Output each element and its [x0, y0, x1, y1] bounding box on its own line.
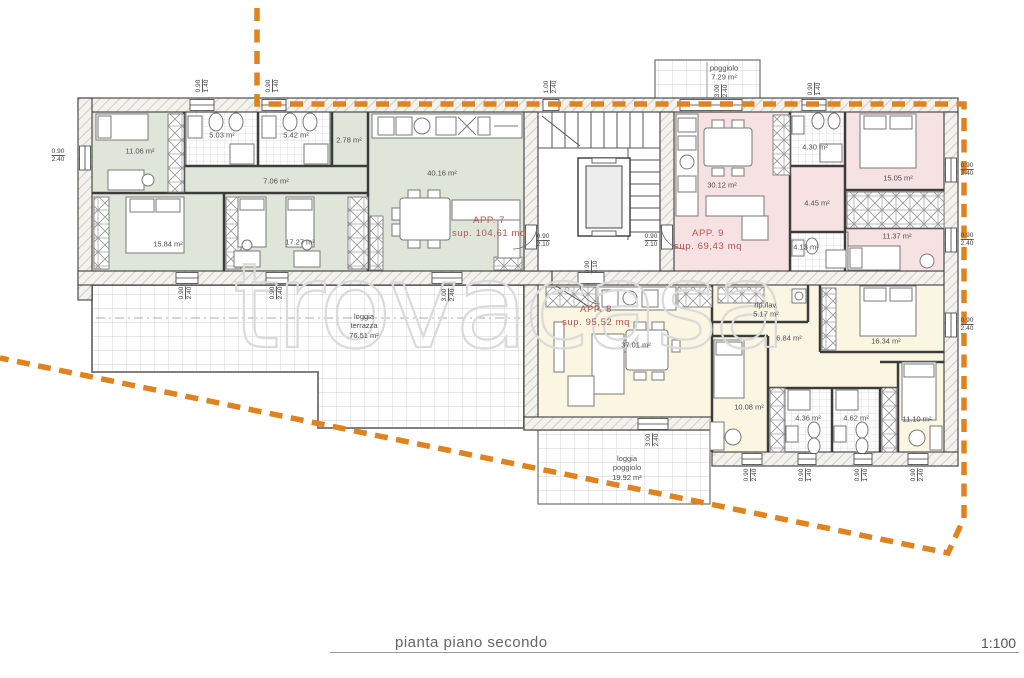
floor-plan-canvas: trovacasa 11.06 m² 5.03 m² 5.42 m² 2.78 … — [0, 0, 1024, 678]
dining-table — [400, 198, 450, 240]
room-label-bedroom: 15.05 m² — [883, 173, 913, 182]
dim-label: 0.901.40 — [807, 83, 823, 96]
apartment-area: sup. 69,43 mq — [674, 241, 742, 254]
room-label-corridor: 6.84 m² — [776, 333, 801, 342]
dim-label: 1.002.40 — [543, 81, 559, 94]
dim-label: 0.902.40 — [52, 148, 65, 164]
dim-label: 0.901.40 — [195, 80, 211, 93]
apartment-name: APP. 7 — [452, 215, 526, 228]
room-label-bathroom: 4.36 m² — [795, 413, 820, 422]
dim-label: 0.902.40 — [961, 232, 974, 248]
dim-label: 0.902.40 — [269, 287, 285, 300]
apartment-label-app7: APP. 7 sup. 104,61 mq — [452, 215, 526, 241]
room-label-bedroom: 11.06 m² — [125, 146, 154, 155]
dim-label: 3.002.40 — [714, 85, 730, 98]
room-label-living: 40.16 m² — [427, 168, 457, 177]
room-label-living: 37.01 m² — [621, 340, 651, 349]
room-label-laundry: rip./lav. 5.17 m² — [753, 301, 778, 320]
room-label-bathroom: 5.42 m² — [283, 130, 308, 139]
room-label-bathroom: 4.13 m² — [793, 242, 818, 251]
apartment-name: APP. 8 — [562, 304, 630, 317]
room-label-bathroom: 4.30 m² — [802, 142, 827, 151]
dim-label: 0.902.40 — [743, 469, 759, 482]
loggia-terrazza — [92, 285, 524, 428]
room-label-bedroom: 10.08 m² — [734, 402, 764, 411]
dim-label: 0.902.40 — [178, 287, 194, 300]
dim-label: 0.901.40 — [798, 469, 814, 482]
apartment-area: sup. 95,52 mq — [562, 317, 630, 330]
dim-label: 3.002.40 — [441, 289, 457, 302]
dim-label: 0.901.40 — [265, 80, 281, 93]
apartment-area: sup. 104,61 mq — [452, 228, 526, 241]
sofa — [706, 196, 764, 216]
dim-label: 0.902.10 — [645, 233, 658, 249]
room-label-bedroom: 16.34 m² — [871, 336, 901, 345]
dim-label: 0.902.40 — [961, 317, 974, 333]
dim-label: 0.902.40 — [961, 162, 974, 178]
room-label-bedroom: 15.84 m² — [153, 239, 183, 248]
room-label-corridor: 7.06 m² — [263, 176, 288, 185]
dim-label: 0.902.10 — [537, 233, 550, 249]
drawing-title: pianta piano secondo — [395, 634, 548, 651]
dining-table — [704, 128, 752, 166]
dim-label: 0.902.40 — [910, 469, 926, 482]
room-label-terrace: loggia terrazza 76.51 m² — [349, 312, 379, 340]
dim-label: 0.901.40 — [854, 469, 870, 482]
room-label-bedroom: 17.27 m² — [285, 237, 315, 246]
room-label-corridor: 4.45 m² — [804, 198, 829, 207]
apartment-name: APP. 9 — [674, 228, 742, 241]
title-rule — [330, 652, 1019, 653]
dining-table — [626, 330, 668, 370]
apartment-label-app8: APP. 8 sup. 95,52 mq — [562, 304, 630, 330]
room-label-bedroom: 11.37 m² — [882, 231, 911, 240]
apartment-label-app9: APP. 9 sup. 69,43 mq — [674, 228, 742, 254]
room-label-bathroom: 4.62 m² — [843, 413, 868, 422]
drawing-scale: 1:100 — [981, 635, 1016, 651]
room-label-loggia: loggia poggiolo 19.92 m² — [612, 454, 642, 482]
room-label-closet: 2.78 m² — [336, 135, 361, 144]
sofa — [592, 334, 624, 394]
room-label-balcony: poggiolo 7.29 m² — [710, 64, 738, 83]
room-label-bedroom: 11.10 m² — [902, 414, 931, 423]
room-label-living: 30.12 m² — [707, 180, 737, 189]
desk — [108, 170, 144, 190]
dim-label: 0.902.10 — [584, 261, 600, 274]
room-label-bathroom: 5.03 m² — [209, 130, 234, 139]
dim-label: 3.002.40 — [645, 434, 661, 447]
elevator-cab — [586, 166, 622, 228]
